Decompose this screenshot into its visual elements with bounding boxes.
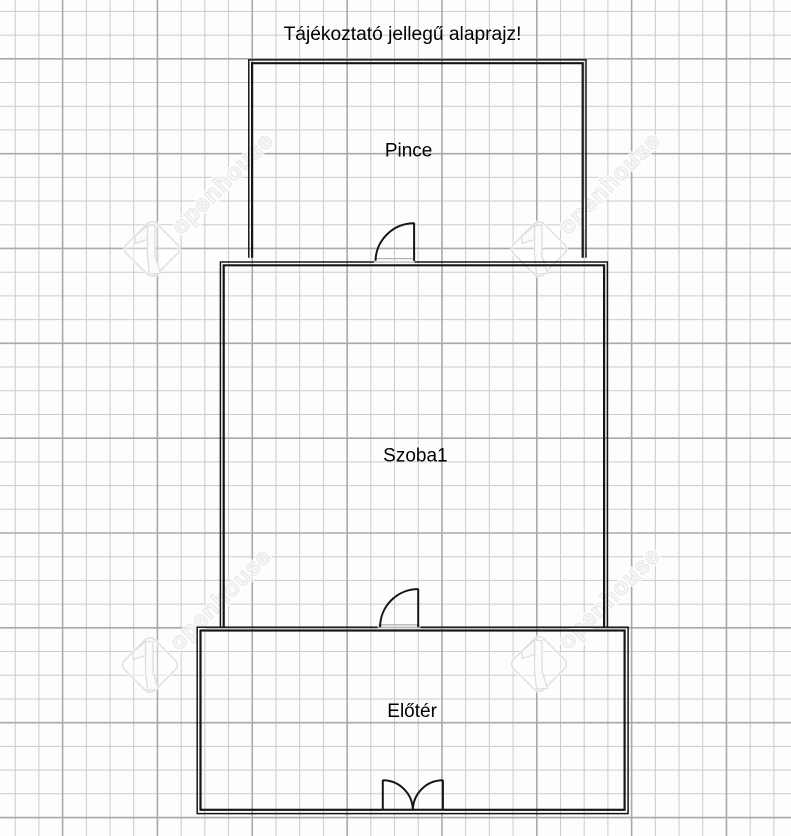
svg-text:Tájékoztató jellegű alaprajz!: Tájékoztató jellegű alaprajz!: [284, 24, 522, 45]
svg-text:Pince: Pince: [385, 140, 433, 161]
svg-text:Előtér: Előtér: [387, 701, 437, 722]
svg-text:Szoba1: Szoba1: [383, 445, 447, 466]
